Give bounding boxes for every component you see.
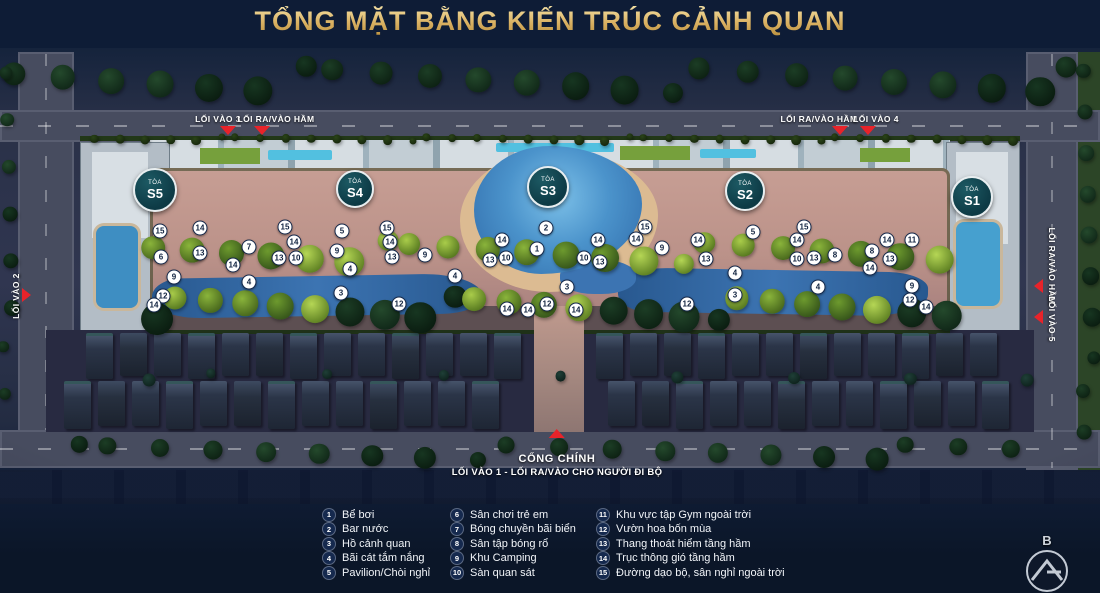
map-marker-13: 13 xyxy=(193,246,208,261)
map-marker-12: 12 xyxy=(903,293,918,308)
legend-item-label: Thang thoát hiểm tầng hầm xyxy=(616,538,751,550)
tree xyxy=(147,71,174,98)
main-axis-walkway xyxy=(534,306,584,432)
tree xyxy=(1021,374,1034,387)
tree xyxy=(2,206,17,221)
villa-roof xyxy=(868,333,895,376)
map-marker-14: 14 xyxy=(287,235,302,250)
tower-badge-s1: TÒAS1 xyxy=(951,176,993,218)
villa-roof xyxy=(290,333,317,379)
tree xyxy=(437,235,460,258)
map-marker-13: 13 xyxy=(807,251,822,266)
villa-roof xyxy=(154,333,181,376)
map-marker-7: 7 xyxy=(242,240,257,255)
legend-number-badge: 10 xyxy=(450,566,464,580)
map-marker-14: 14 xyxy=(193,221,208,236)
map-marker-14: 14 xyxy=(495,233,510,248)
villa-roof xyxy=(982,381,1009,429)
villa-roof xyxy=(710,381,737,426)
podium-pool xyxy=(268,150,332,160)
map-marker-9: 9 xyxy=(905,279,920,294)
entrance-arrow-icon xyxy=(220,126,236,135)
map-marker-4: 4 xyxy=(728,266,743,281)
villa-roof xyxy=(970,333,997,376)
legend-number-badge: 4 xyxy=(322,551,336,565)
tree xyxy=(663,83,683,103)
villa-roof xyxy=(744,381,771,426)
legend-item: 5Pavilion/Chòi nghỉ xyxy=(322,567,430,579)
map-marker-14: 14 xyxy=(691,233,706,248)
legend-number-badge: 7 xyxy=(450,522,464,536)
tower-badge-s3: TÒAS3 xyxy=(527,166,569,208)
tree xyxy=(741,135,750,144)
villa-roof xyxy=(200,381,227,426)
tree xyxy=(524,135,533,144)
map-marker-14: 14 xyxy=(500,302,515,317)
tree xyxy=(1056,57,1077,78)
tree xyxy=(418,64,442,88)
villa-roof xyxy=(472,381,499,429)
tree xyxy=(788,372,800,384)
legend-item: 3Hồ cảnh quan xyxy=(322,538,430,550)
legend-number-badge: 6 xyxy=(450,508,464,522)
legend-item-label: Bãi cát tắm nắng xyxy=(342,552,425,564)
legend-number-badge: 11 xyxy=(596,508,610,522)
villa-roof xyxy=(166,381,193,429)
villa-roof xyxy=(698,333,725,379)
tree xyxy=(983,136,993,146)
legend-item: 7Bóng chuyền bãi biển xyxy=(450,524,576,536)
tree xyxy=(856,134,864,142)
villa-roof xyxy=(64,381,91,429)
villa-roof xyxy=(596,333,623,379)
legend-item-label: Đường dạo bộ, sân nghỉ ngoài trời xyxy=(616,567,785,579)
tree xyxy=(600,136,610,146)
tree xyxy=(574,135,584,145)
tree xyxy=(267,293,294,320)
tree xyxy=(634,299,664,329)
site-plan-scene: TỔNG MẶT BẰNG KIẾN TRÚC CẢNH QUAN 151413… xyxy=(0,0,1100,593)
map-marker-10: 10 xyxy=(790,252,805,267)
villa-roof xyxy=(98,381,125,426)
tree xyxy=(369,62,392,85)
legend-number-badge: 2 xyxy=(322,522,336,536)
villa-roof xyxy=(948,381,975,426)
tree xyxy=(599,297,628,326)
tree xyxy=(336,297,365,326)
map-marker-3: 3 xyxy=(728,288,743,303)
map-marker-14: 14 xyxy=(919,300,934,315)
villa-roof xyxy=(426,333,453,376)
tree xyxy=(309,443,330,464)
legend-item: 13Thang thoát hiểm tầng hầm xyxy=(596,538,785,550)
legend-number-badge: 8 xyxy=(450,537,464,551)
villa-roof xyxy=(234,381,261,426)
tree xyxy=(1025,77,1055,107)
map-marker-15: 15 xyxy=(153,224,168,239)
compass-north-label: B xyxy=(1024,533,1070,548)
legend-item-label: Hồ cảnh quan xyxy=(342,538,411,550)
tree xyxy=(610,75,639,104)
gate-subtitle: LỐI VÀO 1 - LỐI RA/VÀO CHO NGƯỜI ĐI BỘ xyxy=(452,467,663,478)
map-marker-9: 9 xyxy=(330,244,345,259)
villa-roof xyxy=(664,333,691,376)
map-marker-10: 10 xyxy=(499,251,514,266)
tree xyxy=(897,436,914,453)
pool-west xyxy=(96,226,138,308)
legend-number-badge: 9 xyxy=(450,551,464,565)
map-marker-13: 13 xyxy=(593,255,608,270)
gate-arrow-icon xyxy=(549,429,565,438)
villa-roof xyxy=(766,333,793,376)
tower-badge-s2: TÒAS2 xyxy=(725,171,765,211)
label-entrance-4: LỐI VÀO 4 xyxy=(853,114,899,124)
tree xyxy=(98,68,124,94)
legend-item-label: Sàn quan sát xyxy=(470,567,535,579)
villa-roof xyxy=(494,333,521,379)
villa-roof xyxy=(812,381,839,426)
legend-number-badge: 13 xyxy=(596,537,610,551)
villa-roof xyxy=(370,381,397,429)
legend-item-label: Trục thông gió tầng hầm xyxy=(616,552,735,564)
label-ramp-right: LỐI RA/VÀO HẦM xyxy=(1047,228,1057,305)
villa-roof xyxy=(222,333,249,376)
label-entrance-5: LỐI VÀO 5 xyxy=(1047,296,1057,342)
legend-item: 1Bể bơi xyxy=(322,509,430,521)
label-ramp-top-left: LỐI RA/VÀO HẦM xyxy=(238,114,315,124)
map-marker-5: 5 xyxy=(335,224,350,239)
map-marker-4: 4 xyxy=(448,269,463,284)
tree xyxy=(141,135,150,144)
villa-roof xyxy=(438,381,465,426)
tree xyxy=(553,242,580,269)
villa-roof xyxy=(358,333,385,376)
page-title: TỔNG MẶT BẰNG KIẾN TRÚC CẢNH QUAN xyxy=(0,6,1100,37)
villa-roof xyxy=(902,333,929,379)
villa-roof xyxy=(268,381,295,429)
map-marker-14: 14 xyxy=(147,298,162,313)
legend-item-label: Sân tập bóng rổ xyxy=(470,538,548,550)
map-marker-12: 12 xyxy=(540,297,555,312)
map-marker-13: 13 xyxy=(699,252,714,267)
tree xyxy=(307,135,316,144)
map-marker-6: 6 xyxy=(154,250,169,265)
villa-roof xyxy=(404,381,431,426)
villa-roof xyxy=(800,333,827,379)
map-marker-3: 3 xyxy=(560,280,575,295)
tree xyxy=(1076,384,1090,398)
green-roof xyxy=(860,148,910,162)
tree xyxy=(1008,136,1018,146)
tower-badge-s5: TÒAS5 xyxy=(133,168,177,212)
legend-item-label: Khu vực tập Gym ngoài trời xyxy=(616,509,751,521)
map-marker-15: 15 xyxy=(380,221,395,236)
tree xyxy=(640,134,648,142)
map-marker-2: 2 xyxy=(539,221,554,236)
villa-roof xyxy=(630,333,657,376)
tree xyxy=(794,291,820,317)
tree xyxy=(866,447,889,470)
legend-item: 15Đường dạo bộ, sân nghỉ ngoài trời xyxy=(596,567,785,579)
legend-number-badge: 1 xyxy=(322,508,336,522)
legend-item-label: Bar nước xyxy=(342,523,388,535)
tree xyxy=(323,369,333,379)
tower-badge-s4: TÒAS4 xyxy=(336,170,374,208)
legend-item: 12Vườn hoa bốn mùa xyxy=(596,524,785,536)
map-marker-8: 8 xyxy=(865,244,880,259)
map-marker-14: 14 xyxy=(591,233,606,248)
map-marker-9: 9 xyxy=(167,270,182,285)
tree xyxy=(760,289,785,314)
tree xyxy=(1082,267,1100,285)
tree xyxy=(562,73,590,101)
tree xyxy=(828,294,855,321)
map-marker-9: 9 xyxy=(655,241,670,256)
tree xyxy=(50,65,75,90)
tree xyxy=(0,341,9,353)
tree xyxy=(398,233,420,255)
map-marker-15: 15 xyxy=(278,220,293,235)
legend-number-badge: 3 xyxy=(322,537,336,551)
tree xyxy=(761,444,782,465)
tree xyxy=(1,113,15,127)
tree xyxy=(1083,308,1100,327)
legend: 1Bể bơi2Bar nước3Hồ cảnh quan4Bãi cát tắ… xyxy=(322,509,882,589)
tree xyxy=(256,442,276,462)
tree xyxy=(881,69,907,95)
map-marker-1: 1 xyxy=(530,242,545,257)
map-marker-14: 14 xyxy=(569,303,584,318)
map-marker-9: 9 xyxy=(418,248,433,263)
map-marker-13: 13 xyxy=(883,252,898,267)
tree xyxy=(332,135,341,144)
tree xyxy=(1077,105,1092,120)
legend-item: 8Sân tập bóng rổ xyxy=(450,538,576,550)
label-entrance-2: LỐI VÀO 2 xyxy=(11,273,21,319)
villa-roof xyxy=(880,381,907,429)
tree xyxy=(907,135,916,144)
map-marker-10: 10 xyxy=(577,251,592,266)
tree xyxy=(191,136,201,146)
map-marker-4: 4 xyxy=(242,275,257,290)
villa-roof xyxy=(302,381,329,426)
tree xyxy=(115,135,124,144)
map-marker-5: 5 xyxy=(746,225,761,240)
podium-pool xyxy=(700,149,756,158)
tree xyxy=(195,73,223,101)
tree xyxy=(932,300,963,331)
villa-roof xyxy=(132,381,159,426)
villa-roof xyxy=(676,381,703,429)
legend-item: 9Khu Camping xyxy=(450,553,576,565)
map-marker-14: 14 xyxy=(790,233,805,248)
villa-roof xyxy=(336,381,363,426)
map-marker-14: 14 xyxy=(629,232,644,247)
legend-item-label: Sân chơi trẻ em xyxy=(470,509,548,521)
legend-number-badge: 15 xyxy=(596,566,610,580)
villa-roof xyxy=(120,333,147,376)
gate-title: CỔNG CHÍNH xyxy=(452,453,663,465)
villa-roof xyxy=(392,333,419,379)
compass-icon xyxy=(1024,548,1070,593)
compass: B xyxy=(1024,533,1070,593)
map-marker-14: 14 xyxy=(880,233,895,248)
villa-roof xyxy=(642,381,669,426)
legend-item-label: Bể bơi xyxy=(342,509,374,521)
map-marker-14: 14 xyxy=(383,235,398,250)
pool-east xyxy=(956,222,1000,306)
entrance-arrow-icon xyxy=(22,288,31,302)
tree xyxy=(321,59,343,81)
tree xyxy=(204,441,223,460)
legend-item-label: Khu Camping xyxy=(470,552,537,564)
tree xyxy=(257,134,265,142)
tree xyxy=(833,66,858,91)
entrance-arrow-icon xyxy=(860,126,876,135)
label-entrance-3: LỐI VÀO 3 xyxy=(195,114,241,124)
map-marker-4: 4 xyxy=(343,262,358,277)
legend-number-badge: 12 xyxy=(596,522,610,536)
tree xyxy=(791,136,801,146)
map-marker-4: 4 xyxy=(811,280,826,295)
villa-roof xyxy=(936,333,963,376)
tree xyxy=(383,136,393,146)
villa-roof xyxy=(846,381,873,426)
map-marker-8: 8 xyxy=(828,248,843,263)
legend-item: 14Trục thông gió tầng hầm xyxy=(596,553,785,565)
tree xyxy=(1079,145,1095,161)
villa-roof xyxy=(86,333,113,379)
entrance-arrow-icon xyxy=(832,126,848,135)
main-gate-label: CỔNG CHÍNH LỐI VÀO 1 - LỐI RA/VÀO CHO NG… xyxy=(452,425,663,478)
tree xyxy=(1081,227,1098,244)
tree xyxy=(932,135,941,144)
villa-roof xyxy=(460,333,487,376)
green-roof xyxy=(620,146,690,160)
map-marker-3: 3 xyxy=(334,286,349,301)
map-marker-14: 14 xyxy=(863,261,878,276)
villa-roof xyxy=(256,333,283,376)
villa-roof xyxy=(732,333,759,376)
tree xyxy=(448,134,456,142)
tree xyxy=(0,66,13,79)
tree xyxy=(151,439,169,457)
tree xyxy=(925,246,954,275)
map-marker-13: 13 xyxy=(272,251,287,266)
legend-column-1: 1Bể bơi2Bar nước3Hồ cảnh quan4Bãi cát tắ… xyxy=(322,509,430,582)
map-marker-10: 10 xyxy=(289,251,304,266)
tree xyxy=(143,374,156,387)
legend-column-2: 6Sân chơi trẻ em7Bóng chuyền bãi biển8Sâ… xyxy=(450,509,576,582)
legend-item-label: Bóng chuyền bãi biển xyxy=(470,523,576,535)
tree xyxy=(785,63,809,87)
tree xyxy=(665,134,673,142)
legend-item-label: Vườn hoa bốn mùa xyxy=(616,523,711,535)
legend-column-3: 11Khu vực tập Gym ngoài trời12Vườn hoa b… xyxy=(596,509,785,582)
map-marker-14: 14 xyxy=(226,258,241,273)
map-marker-11: 11 xyxy=(905,233,920,248)
map-marker-13: 13 xyxy=(385,250,400,265)
tree xyxy=(1077,425,1092,440)
villa-roof xyxy=(914,381,941,426)
legend-number-badge: 5 xyxy=(322,566,336,580)
villa-roof xyxy=(778,381,805,429)
legend-number-badge: 14 xyxy=(596,551,610,565)
map-marker-12: 12 xyxy=(392,297,407,312)
tree xyxy=(715,135,724,144)
label-ramp-top-right: LỐI RA/VÀO HẦM xyxy=(781,114,858,124)
legend-item: 6Sân chơi trẻ em xyxy=(450,509,576,521)
map-marker-12: 12 xyxy=(680,297,695,312)
entrance-arrow-icon xyxy=(1034,310,1043,324)
legend-item-label: Pavilion/Chòi nghỉ xyxy=(342,567,430,579)
map-marker-13: 13 xyxy=(483,253,498,268)
green-roof xyxy=(200,148,260,164)
legend-item: 11Khu vực tập Gym ngoài trời xyxy=(596,509,785,521)
villa-roof xyxy=(608,381,635,426)
tree xyxy=(462,288,486,312)
tree xyxy=(301,295,329,323)
tree xyxy=(410,137,417,144)
map-marker-14: 14 xyxy=(521,303,536,318)
villa-roof xyxy=(834,333,861,376)
legend-item: 2Bar nước xyxy=(322,524,430,536)
legend-item: 4Bãi cát tắm nắng xyxy=(322,553,430,565)
entrance-arrow-icon xyxy=(1034,279,1043,293)
entrance-arrow-icon xyxy=(254,126,270,135)
legend-item: 10Sàn quan sát xyxy=(450,567,576,579)
lane-marking xyxy=(0,125,1100,127)
tree xyxy=(555,371,566,382)
tree xyxy=(813,446,835,468)
